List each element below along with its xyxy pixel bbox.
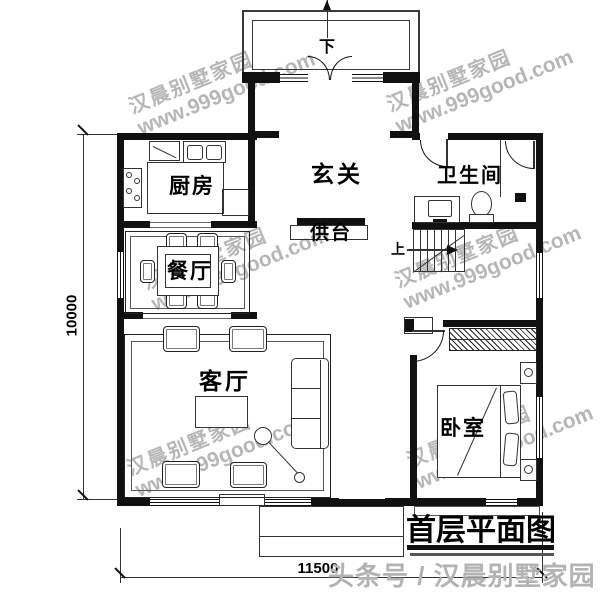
armchair (230, 462, 267, 488)
wall-stub (390, 131, 412, 138)
room-label-kitchen: 厨房 (152, 176, 232, 197)
terrace-step (259, 506, 404, 537)
kitchen-sink-basin (187, 145, 203, 160)
wardrobe-divider (449, 339, 537, 340)
wall-bedroom-left (410, 355, 417, 506)
porch-window (280, 74, 308, 82)
room-label-altar: 供台 (301, 224, 361, 243)
window-left (117, 252, 124, 298)
window-bottom (265, 499, 311, 506)
shower-door-arc (505, 141, 534, 169)
wall-bedroom-top (443, 320, 543, 327)
stove-burner (126, 172, 132, 178)
bed-headboard-line (500, 386, 501, 477)
stair-direction-line (407, 249, 449, 251)
window-bottom (150, 499, 221, 506)
dim-ext (77, 134, 117, 135)
stair-tread (434, 229, 435, 272)
wall-stub (255, 131, 279, 138)
wall-kitchen-right (248, 74, 255, 228)
sofa-cushion-line (292, 388, 320, 389)
wall-right (536, 298, 543, 397)
window-right (536, 397, 543, 458)
floor-lamp-base (294, 472, 305, 483)
wall-bath-right (536, 133, 543, 229)
armchair (229, 326, 267, 352)
dim-line-left (83, 134, 84, 500)
wall-bath-bottom (412, 222, 543, 229)
footer-credit: 头条号 / 汉晨别墅家园 (328, 563, 600, 589)
room-label-bedroom: 卧室 (432, 418, 494, 439)
dim-label-height: 10000 (65, 288, 80, 344)
terrace-door-sill (339, 499, 385, 506)
entry-down-label: 下 (316, 40, 338, 56)
sofa (291, 358, 329, 449)
armchair (163, 326, 200, 352)
title-underline-thin (410, 553, 554, 556)
wall-bottom (117, 498, 150, 506)
wall-bath-top (448, 133, 543, 140)
title-underline-thick (407, 545, 554, 550)
pillow (503, 432, 520, 466)
plan-title: 首层平面图 (406, 516, 556, 546)
bath-sink (428, 200, 452, 217)
bedroom-door-arc (412, 331, 444, 362)
stair-direction-arrow (447, 245, 458, 255)
wall-bottom (416, 498, 486, 506)
room-label-dining: 餐厅 (150, 261, 230, 282)
window-right (536, 253, 543, 298)
wall-left (117, 298, 124, 506)
stair-tread (427, 229, 428, 272)
wall-bottom (311, 498, 339, 506)
bath-sink-base (433, 219, 447, 222)
sofa-cushion-line (292, 418, 320, 419)
entry-direction-arrow (323, 0, 331, 10)
room-label-living: 客厅 (185, 370, 265, 393)
wall-kitchen-bottom (211, 221, 257, 228)
wall-kitchen-bottom (117, 221, 150, 228)
stove-burner (126, 188, 132, 194)
stove-burner (134, 178, 140, 184)
wall-bath-top (412, 133, 420, 140)
floor-drain (515, 193, 526, 202)
room-label-bathroom: 卫生间 (427, 166, 513, 186)
porch-window (352, 74, 383, 82)
coffee-table (195, 396, 248, 428)
pillow (503, 390, 520, 424)
kitchen-sink-basin (206, 145, 222, 160)
wall-bottom (517, 498, 543, 506)
sofa-back-line (320, 360, 321, 448)
room-label-hall: 玄关 (297, 163, 377, 186)
stair-up-label: 上 (390, 242, 406, 256)
floor-plan-canvas: 汉晨别墅家园 www.999good.com 汉晨别墅家园 www.999goo… (0, 0, 600, 600)
wall-hall-right (412, 76, 419, 138)
window-bottom (486, 499, 517, 506)
stove-burner (134, 195, 140, 201)
wall-right (536, 229, 543, 253)
dim-ext (77, 499, 117, 500)
armchair (162, 461, 200, 488)
bathroom-door-leaf (446, 139, 448, 167)
kitchen-door-opening (150, 222, 211, 228)
wall-kitchen-top (117, 133, 257, 140)
toilet-tank (469, 214, 494, 223)
nightstand-lamp (524, 465, 533, 474)
nightstand-lamp (524, 368, 533, 377)
bathroom-door-arc (420, 140, 447, 167)
